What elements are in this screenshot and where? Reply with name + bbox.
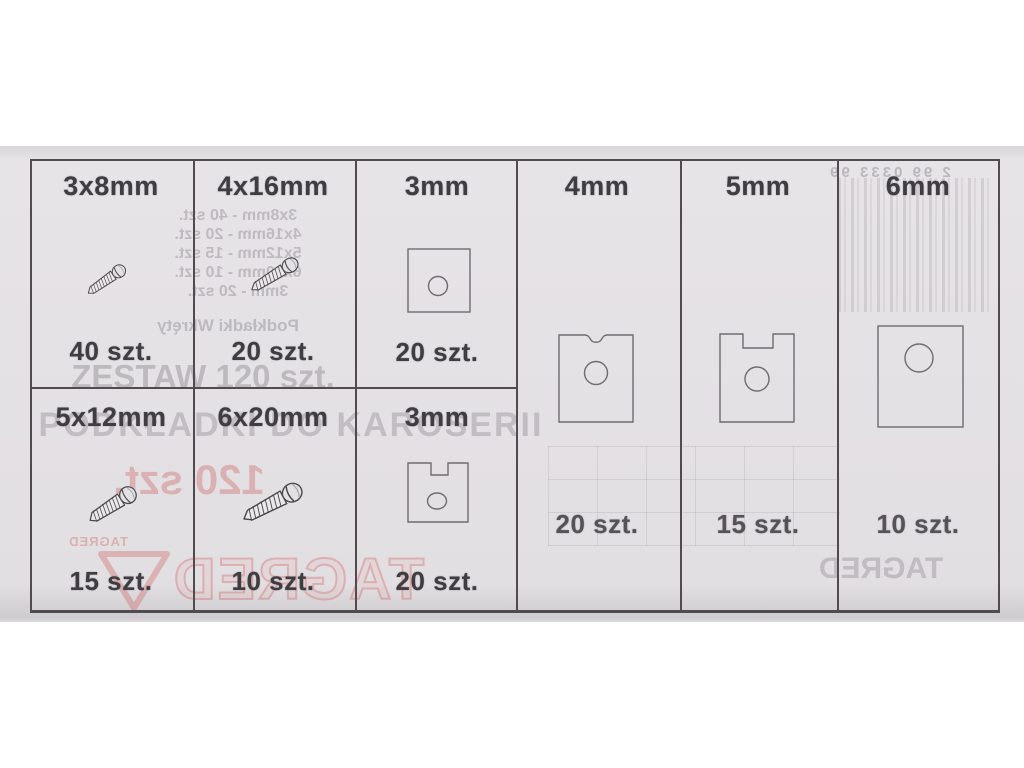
count-label-5mm: 15 szt. bbox=[673, 509, 843, 540]
size-label-6mm: 6mm bbox=[833, 171, 1003, 202]
washer-6mm-image bbox=[877, 325, 964, 429]
showthrough-brand-gray: TAGRED bbox=[806, 552, 956, 586]
washer-4mm-image bbox=[558, 332, 635, 424]
count-label-3mm: 20 szt. bbox=[352, 337, 522, 368]
count-label-5x12mm: 15 szt. bbox=[26, 566, 196, 597]
size-label-5x12mm: 5x12mm bbox=[26, 402, 196, 433]
size-label-3mm: 3mm bbox=[352, 171, 522, 202]
size-label-4x16mm: 4x16mm bbox=[188, 171, 358, 202]
size-label-5mm: 5mm bbox=[673, 171, 843, 202]
count-label-3mm-notched: 20 szt. bbox=[352, 566, 522, 597]
washer-3mm-notched-image bbox=[407, 462, 470, 524]
size-label-4mm: 4mm bbox=[512, 171, 682, 202]
count-label-3x8mm: 40 szt. bbox=[26, 336, 196, 367]
showthrough-contents-caption: Podkładki Wkręty bbox=[118, 316, 338, 336]
size-label-6x20mm: 6x20mm bbox=[188, 402, 358, 433]
washer-5mm-image bbox=[719, 333, 796, 424]
count-label-4x16mm: 20 szt. bbox=[188, 336, 358, 367]
size-label-3x8mm: 3x8mm bbox=[26, 171, 196, 202]
showthrough-contents-list: 3x8mm - 40 szt. 4x16mm - 20 szt. 5x12mm … bbox=[118, 206, 358, 301]
product-label-photo: 3x8mm - 40 szt. 4x16mm - 20 szt. 5x12mm … bbox=[0, 0, 1024, 768]
size-label-3mm-notched: 3mm bbox=[352, 402, 522, 433]
count-label-6x20mm: 10 szt. bbox=[188, 566, 358, 597]
count-label-4mm: 20 szt. bbox=[512, 509, 682, 540]
showthrough-brand-small: TAGRED bbox=[38, 534, 128, 549]
washer-3mm-image bbox=[407, 248, 471, 313]
count-label-6mm: 10 szt. bbox=[833, 509, 1003, 540]
